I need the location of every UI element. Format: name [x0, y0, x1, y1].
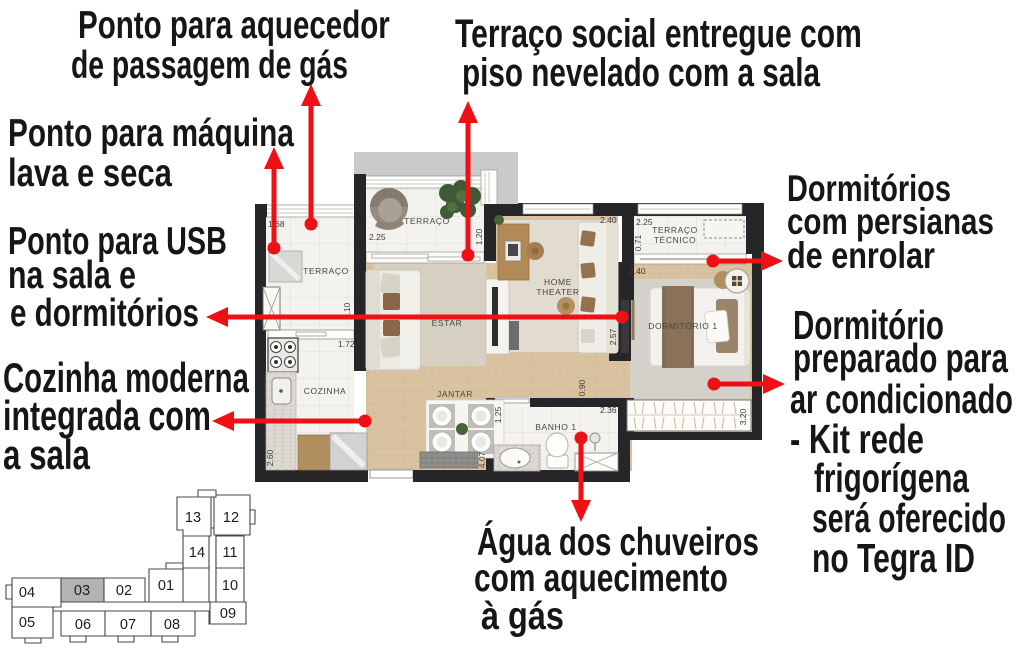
svg-text:14: 14	[189, 545, 205, 561]
svg-text:JANTAR: JANTAR	[437, 389, 473, 399]
svg-text:lava e seca: lava e seca	[8, 152, 172, 195]
svg-text:11: 11	[222, 545, 237, 561]
svg-text:preparado para: preparado para	[793, 335, 1009, 381]
svg-text:THEATER: THEATER	[536, 287, 579, 297]
svg-text:1.20: 1.20	[474, 228, 484, 245]
svg-text:TERRAÇO: TERRAÇO	[303, 266, 349, 276]
svg-text:2.40: 2.40	[600, 215, 617, 225]
svg-text:1.72: 1.72	[338, 339, 355, 349]
svg-text:2.36: 2.36	[600, 405, 617, 415]
svg-text:12: 12	[223, 510, 239, 526]
svg-text:BANHO 1: BANHO 1	[535, 422, 577, 432]
svg-text:09: 09	[220, 606, 236, 622]
svg-text:frigorígena: frigorígena	[814, 455, 970, 501]
svg-text:1.25: 1.25	[493, 406, 503, 423]
svg-text:3.20: 3.20	[738, 408, 748, 425]
svg-text:HOME: HOME	[544, 277, 572, 287]
svg-text:Terraço social entregue com: Terraço social entregue com	[455, 12, 862, 56]
svg-text:05: 05	[19, 615, 35, 631]
svg-text:no Tegra ID: no Tegra ID	[812, 534, 975, 581]
svg-text:2.57: 2.57	[608, 328, 618, 345]
svg-text:TÉCNICO: TÉCNICO	[654, 235, 696, 245]
svg-text:de enrolar: de enrolar	[787, 235, 935, 276]
svg-text:08: 08	[164, 617, 180, 633]
svg-text:TERRAÇO: TERRAÇO	[652, 225, 698, 235]
svg-text:2.25: 2.25	[636, 217, 653, 227]
svg-text:2.25: 2.25	[369, 232, 386, 242]
svg-text:4.07: 4.07	[477, 451, 487, 468]
svg-text:COZINHA: COZINHA	[304, 386, 346, 396]
svg-text:à gás: à gás	[481, 594, 564, 637]
svg-text:07: 07	[120, 617, 136, 633]
svg-text:06: 06	[75, 617, 91, 633]
svg-text:piso nevelado com a sala: piso nevelado com a sala	[462, 51, 820, 95]
svg-text:03: 03	[74, 583, 90, 599]
svg-text:10: 10	[222, 578, 238, 594]
svg-text:02: 02	[116, 583, 132, 599]
svg-text:04: 04	[19, 585, 35, 601]
svg-text:0.71: 0.71	[633, 234, 643, 251]
svg-text:Ponto para aquecedor: Ponto para aquecedor	[78, 4, 390, 47]
svg-text:e dormitórios: e dormitórios	[10, 292, 199, 335]
svg-text:a sala: a sala	[3, 430, 90, 478]
svg-text:TERRAÇO: TERRAÇO	[404, 216, 450, 226]
svg-text:2.60: 2.60	[265, 449, 275, 466]
svg-text:13: 13	[185, 510, 201, 526]
svg-text:2.40: 2.40	[629, 266, 646, 276]
svg-text:0.90: 0.90	[577, 379, 587, 396]
svg-text:01: 01	[158, 578, 174, 594]
svg-text:Ponto para máquina: Ponto para máquina	[8, 112, 294, 155]
svg-text:de passagem de gás: de passagem de gás	[71, 44, 348, 87]
svg-text:na sala e: na sala e	[8, 253, 136, 297]
svg-text:DORMITÓRIO 1: DORMITÓRIO 1	[648, 321, 718, 331]
